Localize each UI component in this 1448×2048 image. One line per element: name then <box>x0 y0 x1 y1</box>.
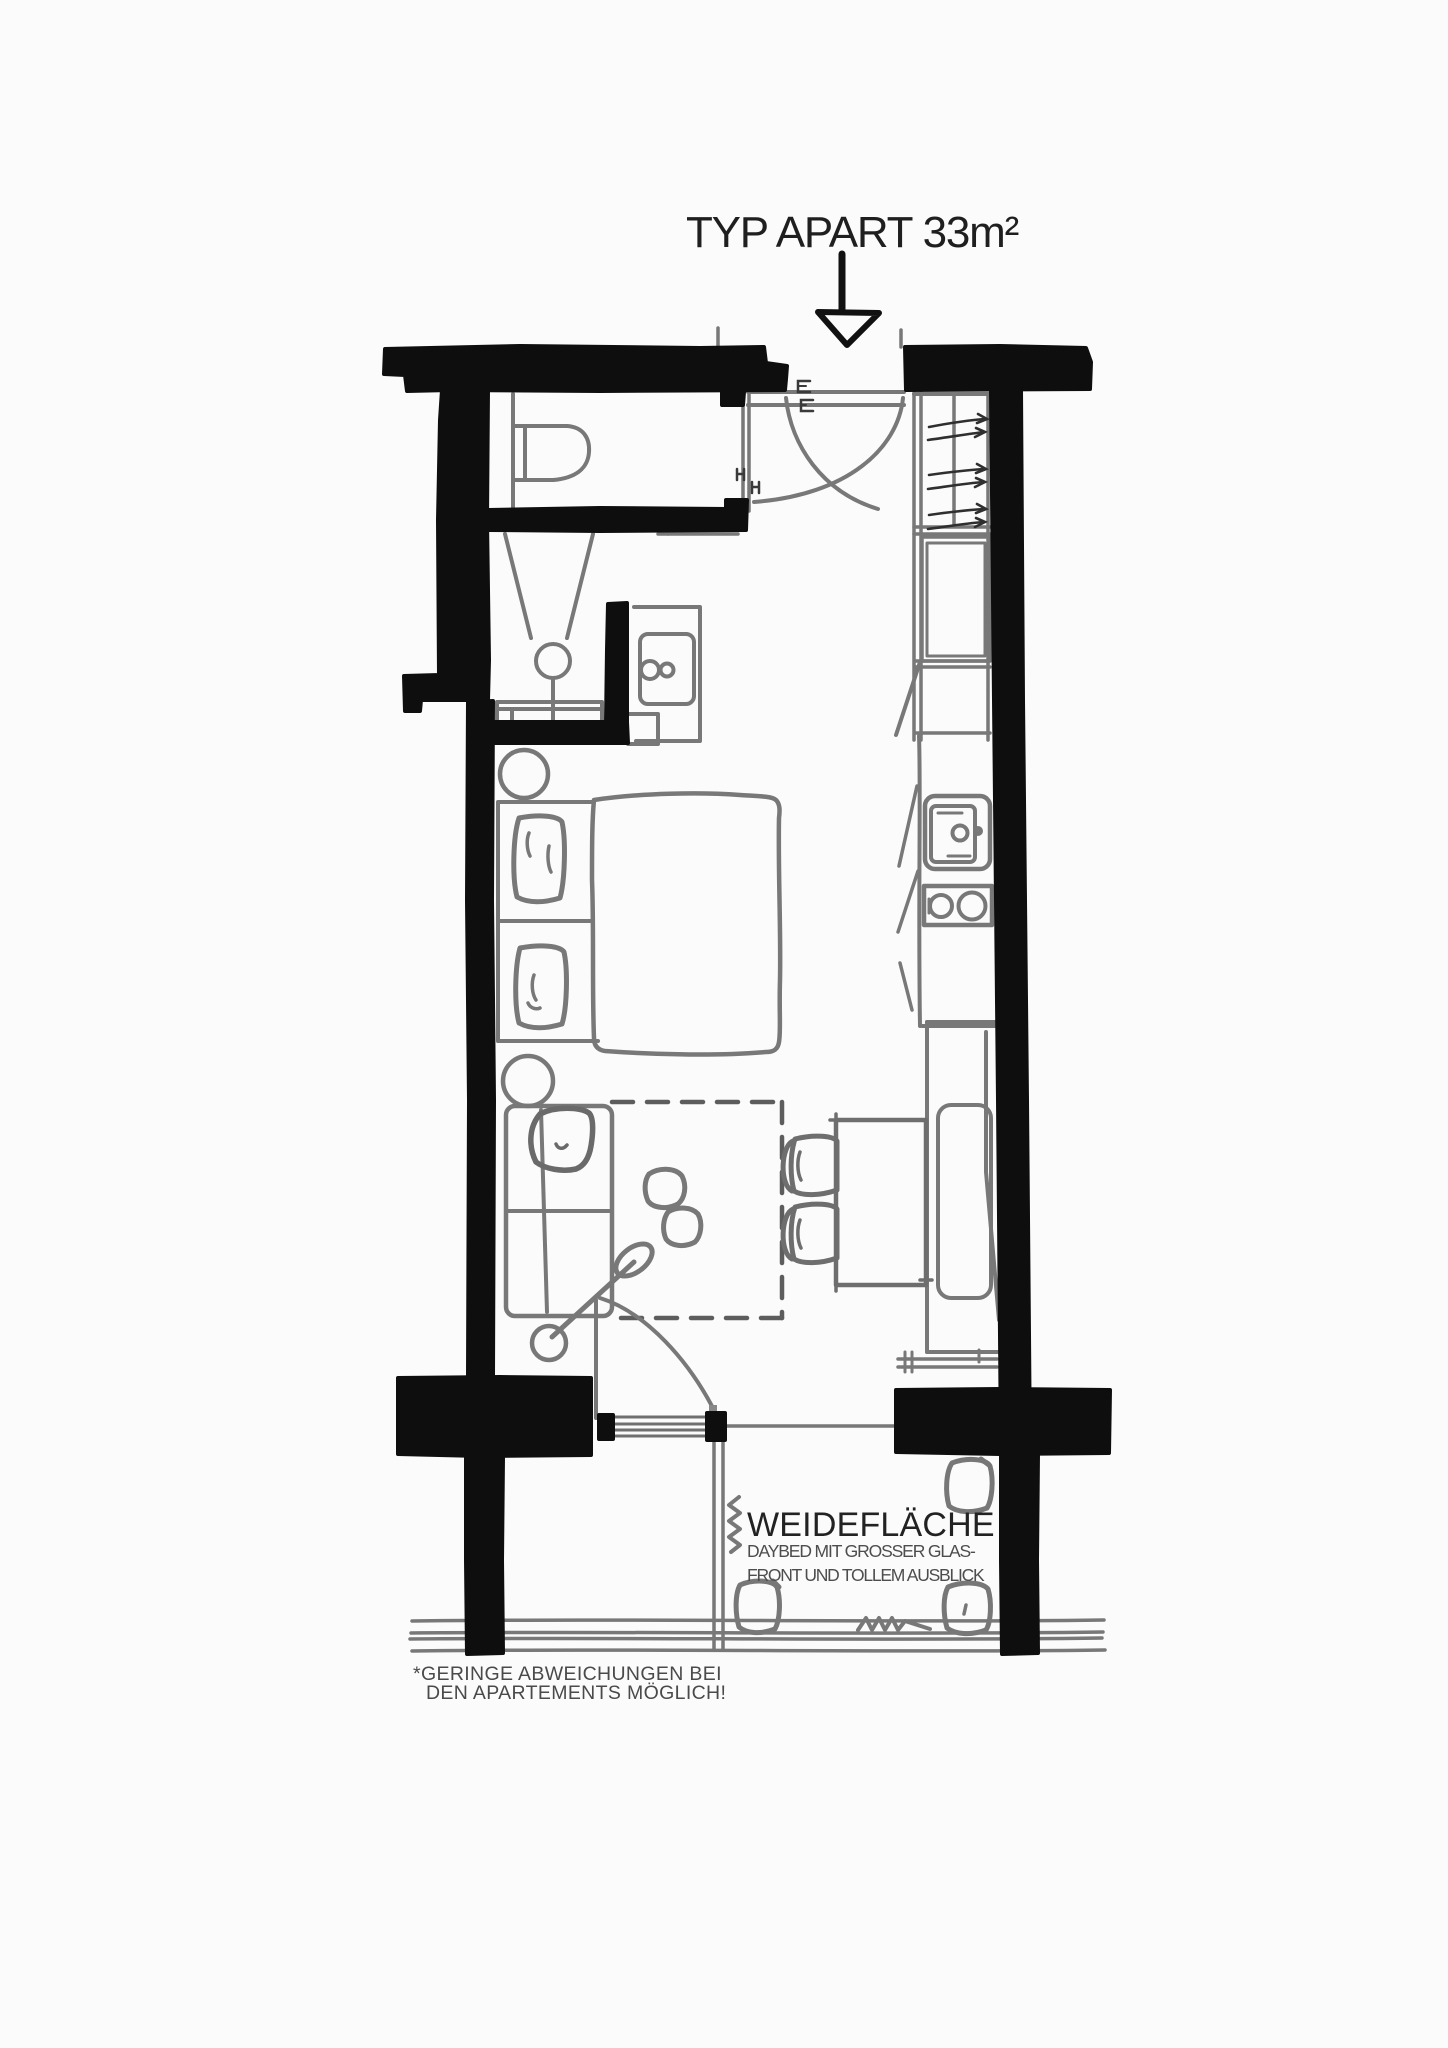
svg-text:DAYBED MIT GROSSER GLAS-: DAYBED MIT GROSSER GLAS- <box>747 1541 976 1561</box>
svg-text:FRONT UND TOLLEM AUSBLICK: FRONT UND TOLLEM AUSBLICK <box>747 1565 985 1585</box>
svg-text:WEIDEFLÄCHE: WEIDEFLÄCHE <box>747 1506 995 1544</box>
svg-text:DEN APARTEMENTS MÖGLICH!: DEN APARTEMENTS MÖGLICH! <box>426 1682 726 1704</box>
svg-text:TYP APART 33m²: TYP APART 33m² <box>686 208 1019 257</box>
